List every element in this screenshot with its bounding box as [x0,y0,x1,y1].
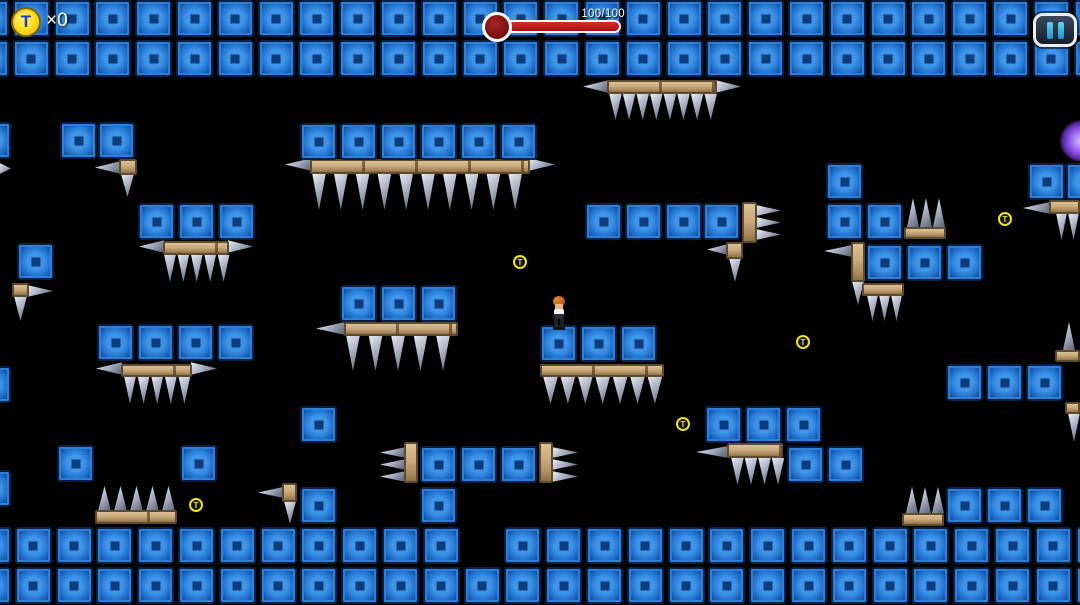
tile-block [665,203,702,240]
wood-platform [726,242,743,259]
spike-right [553,459,578,470]
tile-block [500,446,537,483]
spike-down [560,377,575,404]
spike-down [436,336,450,371]
tile-block [1028,163,1065,200]
tile-block [951,0,988,37]
wood-platform [539,442,553,483]
spike-down [165,377,177,404]
tile-block [668,567,705,604]
tile-block [706,40,743,77]
tile-block [17,243,54,280]
spike-down [636,94,649,120]
spike-up [920,198,932,227]
tile-block [135,0,172,37]
spike-right [757,229,781,240]
coin: T [676,417,690,431]
tile-block [298,40,335,77]
spike-down [704,94,717,120]
tile-block [953,567,990,604]
spike-down [421,174,435,210]
tile-block [992,0,1029,37]
spike-down [677,94,690,120]
spike-left [696,446,727,458]
tile-block [420,446,457,483]
tile-block [540,325,577,362]
tile-block [953,527,990,564]
spike-down [391,336,405,371]
tile-block [300,406,337,443]
tile-block [94,0,131,37]
spike-down [663,94,676,120]
pause-bars-icon [1058,22,1064,39]
wood-platform [163,241,229,255]
spike-left [316,322,344,335]
tile-block [703,203,740,240]
tile-block [382,567,419,604]
wood-platform [540,364,664,377]
tile-block [787,446,824,483]
tile-block [1026,487,1063,524]
wood-platform [344,322,458,336]
tile-block [177,324,214,361]
tile-block [831,527,868,564]
tile-block [339,40,376,77]
tile-block [96,567,133,604]
spike-down [630,377,645,404]
tile-block [584,40,621,77]
spike-down [729,259,741,282]
tile-block [339,0,376,37]
wood-platform [727,443,783,458]
spike-down [745,458,758,485]
spike-down [691,94,704,120]
wood-platform [1049,200,1080,214]
tile-block [421,40,458,77]
tile-block [300,527,337,564]
tile-block [300,487,337,524]
wood-platform [607,80,717,94]
spike-down [14,297,27,321]
tile-block [462,40,499,77]
tile-block [1076,527,1080,564]
tile-block [829,0,866,37]
tile-block [300,123,337,160]
spike-right [28,285,53,297]
tile-block [706,0,743,37]
tile-block [747,40,784,77]
wood-platform [902,513,944,526]
tile-block [15,527,52,564]
tile-block [217,40,254,77]
tile-block [178,203,215,240]
spike-down [609,94,622,120]
tile-block [258,0,295,37]
tile-block [217,324,254,361]
tile-block [747,0,784,37]
spike-up [146,486,159,511]
spike-down [650,94,663,120]
spike-down [731,458,744,485]
tile-block [56,567,93,604]
spike-down [399,174,413,210]
spike-down [151,377,163,404]
spike-down [334,174,348,210]
wood-platform [119,159,137,175]
player-torso [554,309,564,319]
wood-platform [282,483,297,502]
tile-block [545,527,582,564]
tile-block [666,40,703,77]
tile-block [785,406,822,443]
tile-block [584,0,621,37]
spike-down [772,458,785,485]
spike-down [1068,414,1080,442]
tile-block [1066,163,1080,200]
tile-block [585,203,622,240]
tile-block [60,122,97,159]
tile-block [423,527,460,564]
tile-block [341,527,378,564]
spike-right [757,205,781,216]
tile-block [258,40,295,77]
spike-down [623,94,636,120]
tile-block [872,527,909,564]
pause-bars-icon [1047,22,1053,39]
wood-platform [1055,350,1080,362]
spike-down [284,502,296,524]
spike-up [98,486,111,511]
spike-down [121,175,134,197]
wood-platform [310,159,530,174]
player-feet [553,327,565,330]
spike-right [553,447,578,458]
tile-block [1035,567,1072,604]
tile-block [994,567,1031,604]
spike-left [583,80,608,93]
tile-block [946,244,983,281]
spike-down [369,336,383,371]
tile-block [15,567,52,604]
coin: T [998,212,1012,226]
tile-block [380,40,417,77]
tile-block [1076,567,1080,604]
spike-down [578,377,593,404]
spike-up [906,487,918,513]
spike-down [891,296,902,321]
tile-block [217,0,254,37]
tile-block [219,527,256,564]
tile-block [460,123,497,160]
tile-block [13,0,50,37]
tile-block [790,567,827,604]
tile-block [380,123,417,160]
spike-left [707,244,727,255]
tile-block [788,40,825,77]
tile-block [464,567,501,604]
spike-right [228,240,253,253]
wood-platform [12,283,29,297]
spike-down [486,174,500,210]
tile-block [829,40,866,77]
tile-block [176,0,213,37]
game-world: TTTTT [0,0,1080,605]
game-viewport: TTTTT T ×0 100/100 [0,0,1080,605]
spike-down [443,174,457,210]
tile-block [178,567,215,604]
spike-right [191,362,217,375]
tile-block [986,487,1023,524]
tile-block [340,285,377,322]
tile-block [627,567,664,604]
tile-block [423,567,460,604]
tile-block [94,40,131,77]
tile-block [0,470,11,507]
spike-down [647,377,662,404]
tile-block [13,40,50,77]
tile-block [420,285,457,322]
tile-block [910,40,947,77]
tile-block [135,40,172,77]
tile-block [0,40,9,77]
tile-block [994,527,1031,564]
spike-up [907,198,919,227]
wood-platform [742,202,757,243]
tile-block [826,203,863,240]
tile-block [219,567,256,604]
spike-left [1023,202,1049,214]
tile-block [866,203,903,240]
spike-left [824,245,851,257]
tile-block [870,40,907,77]
coin: T [513,255,527,269]
tile-block [260,527,297,564]
spike-down [124,377,136,404]
tile-block [912,527,949,564]
spike-up [162,486,175,511]
tile-block [340,123,377,160]
spike-up [932,487,944,513]
tile-block [178,527,215,564]
spike-down [164,255,176,282]
tile-block [946,364,983,401]
tile-block [745,406,782,443]
tile-block [986,364,1023,401]
tile-block [826,163,863,200]
player-character [551,296,567,330]
tile-block [625,0,662,37]
tile-block [790,527,827,564]
pause-button[interactable] [1033,13,1077,47]
spike-down [177,255,189,282]
tile-block [176,40,213,77]
tile-block [668,527,705,564]
tile-block [545,567,582,604]
spike-left [96,362,122,375]
tile-block [421,0,458,37]
wood-platform [121,364,192,377]
tile-block [504,567,541,604]
tile-block [625,40,662,77]
spike-down [377,174,391,210]
spike-down [218,255,230,282]
spike-right [716,80,741,93]
tile-block [137,567,174,604]
tile-block [138,203,175,240]
spike-down [312,174,326,210]
wood-platform [862,283,904,296]
wood-platform [1065,402,1080,414]
spike-down [595,377,610,404]
spike-down [346,336,360,371]
tile-block [708,527,745,564]
tile-block [54,40,91,77]
tile-block [620,325,657,362]
spike-down [191,255,203,282]
spike-down [138,377,150,404]
spike-down [867,296,878,321]
tile-block [300,567,337,604]
purple-orb [1060,120,1080,162]
tile-block [749,567,786,604]
spike-down [414,336,428,371]
spike-down [758,458,771,485]
spike-right [0,163,11,174]
spike-down [879,296,890,321]
tile-block [625,203,662,240]
tile-block [0,567,11,604]
tile-block [96,527,133,564]
tile-block [543,40,580,77]
spike-down [204,255,216,282]
wood-platform [95,510,177,524]
spike-left [95,161,120,174]
spike-left [139,240,164,253]
tile-block [462,0,499,37]
tile-block [502,40,539,77]
tile-block [380,285,417,322]
tile-block [951,40,988,77]
spike-down [1068,214,1079,240]
wood-platform [904,227,946,239]
coin: T [796,335,810,349]
tile-block [705,406,742,443]
tile-block [543,0,580,37]
tile-block [910,0,947,37]
tile-block [827,446,864,483]
tile-block [98,122,135,159]
tile-block [872,567,909,604]
spike-down [613,377,628,404]
spike-left [380,459,405,470]
tile-block [54,0,91,37]
tile-block [912,567,949,604]
tile-block [341,567,378,604]
tile-block [708,567,745,604]
spike-up [130,486,143,511]
tile-block [504,527,541,564]
tile-block [788,0,825,37]
spike-down [543,377,558,404]
spike-left [258,487,282,498]
tile-block [1074,40,1080,77]
tile-block [260,567,297,604]
tile-block [57,445,94,482]
tile-block [180,445,217,482]
wood-platform [404,442,418,483]
tile-block [218,203,255,240]
tile-block [946,487,983,524]
tile-block [97,324,134,361]
tile-block [666,0,703,37]
tile-block [0,527,11,564]
spike-right [757,217,781,228]
tile-block [1035,527,1072,564]
tile-block [831,567,868,604]
spike-up [933,198,945,227]
spike-up [1063,322,1075,350]
wood-platform [851,242,865,282]
tile-block [382,527,419,564]
coin: T [189,498,203,512]
tile-block [586,527,623,564]
tile-block [380,0,417,37]
tile-block [500,123,537,160]
tile-block [0,366,11,403]
spike-down [465,174,479,210]
tile-block [870,0,907,37]
spike-right [553,471,578,482]
spike-down [178,377,190,404]
tile-block [460,446,497,483]
tile-block [56,527,93,564]
tile-block [298,0,335,37]
spike-down [1056,214,1067,240]
spike-up [114,486,127,511]
tile-block [137,324,174,361]
spike-left [380,471,405,482]
tile-block [137,527,174,564]
tile-block [627,527,664,564]
tile-block [580,325,617,362]
tile-block [906,244,943,281]
spike-down [508,174,522,210]
spike-up [919,487,931,513]
tile-block [586,567,623,604]
tile-block [420,123,457,160]
spike-left [380,447,405,458]
tile-block [0,0,9,37]
tile-block [1026,364,1063,401]
tile-block [502,0,539,37]
tile-block [420,487,457,524]
tile-block [0,122,11,159]
tile-block [749,527,786,564]
spike-down [356,174,370,210]
tile-block [866,244,903,281]
tile-block [992,40,1029,77]
